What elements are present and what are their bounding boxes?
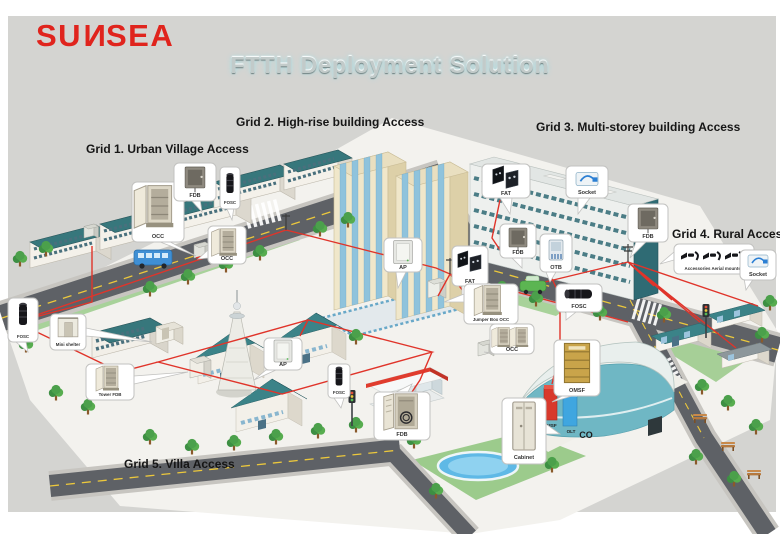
street-cabinet-icon: [96, 366, 119, 391]
svg-text:Jumper Box OCC: Jumper Box OCC: [473, 317, 510, 322]
svg-text:Accessories Aerial mounted: Accessories Aerial mounted: [685, 266, 744, 271]
highrise-tower: [334, 152, 406, 310]
svg-text:AP: AP: [279, 362, 287, 368]
callout-socket-grid4: Socket: [740, 250, 776, 290]
callout-fdb-grid5: FDB: [374, 384, 430, 440]
svg-text:Socket: Socket: [578, 190, 596, 196]
svg-text:FOSC: FOSC: [333, 390, 346, 395]
poster-title: FTTH Deployment Solution: [0, 52, 780, 79]
svg-text:Cabinet: Cabinet: [514, 455, 534, 461]
street-cabinet-icon: [212, 229, 237, 256]
access-point-icon: [274, 340, 292, 362]
svg-text:FOSC: FOSC: [224, 200, 237, 205]
logo-text-flipped-n: N: [82, 20, 106, 51]
mini-shelter-icon: [58, 318, 78, 337]
street-cabinet-icon: [474, 286, 502, 316]
indoor-cabinet-icon: [513, 402, 535, 450]
splice-frame-rack-icon: [564, 343, 589, 382]
splice-closure-icon: [226, 173, 233, 193]
street-cabinet-icon: [492, 327, 510, 347]
svg-text:FDB: FDB: [642, 234, 653, 240]
street-cabinet-icon: [510, 327, 528, 347]
city-illustration: OMSF OLT CO: [0, 0, 780, 534]
svg-text:OCC: OCC: [506, 347, 518, 353]
optical-terminal-box-icon: [549, 240, 563, 260]
svg-text:Mini shelter: Mini shelter: [56, 342, 81, 347]
svg-text:FOSC: FOSC: [571, 304, 586, 310]
svg-text:OMSF: OMSF: [569, 388, 586, 394]
callout-occ-co: OCC: [484, 324, 534, 354]
grid1-label: Grid 1. Urban Village Access: [86, 142, 249, 156]
splice-closure-icon: [336, 367, 343, 386]
svg-text:FDB: FDB: [512, 250, 523, 256]
svg-text:Tower FDB: Tower FDB: [99, 392, 122, 397]
olt-tower: [563, 396, 577, 426]
logo-text: SE: [106, 18, 150, 53]
svg-text:OCC: OCC: [221, 256, 233, 262]
svg-text:AP: AP: [399, 265, 407, 271]
street-cabinet-icon: [134, 186, 173, 229]
sunsea-logo: SUNSEA: [36, 20, 174, 51]
svg-text:FOSC: FOSC: [17, 334, 30, 339]
callout-omsf: OMSF: [552, 340, 600, 402]
fiber-socket-icon: [576, 172, 598, 185]
svg-text:FDB: FDB: [396, 432, 407, 438]
logo-text: SU: [36, 18, 82, 53]
ftth-deployment-poster: OMSF OLT CO: [0, 0, 780, 534]
grid2-label: Grid 2. High-rise building Access: [236, 115, 424, 129]
svg-text:FDB: FDB: [189, 193, 200, 199]
olt-tower-label: OLT: [567, 429, 576, 434]
svg-text:OCC: OCC: [152, 234, 164, 240]
splice-closure-icon: [565, 290, 593, 299]
logo-text: A: [150, 18, 174, 53]
co-label: CO: [579, 430, 593, 440]
svg-text:Socket: Socket: [749, 272, 767, 278]
grid5-label: Grid 5. Villa Access: [124, 457, 235, 471]
svg-text:FAT: FAT: [501, 191, 512, 197]
distribution-cabinet-icon: [384, 394, 418, 430]
grid3-label: Grid 3. Multi-storey building Access: [536, 120, 740, 134]
fiber-socket-icon: [748, 255, 768, 267]
access-point-icon: [394, 240, 413, 263]
svg-text:OTB: OTB: [550, 265, 562, 271]
grid4-label: Grid 4. Rural Access: [672, 227, 780, 241]
splice-closure-icon: [19, 303, 27, 325]
